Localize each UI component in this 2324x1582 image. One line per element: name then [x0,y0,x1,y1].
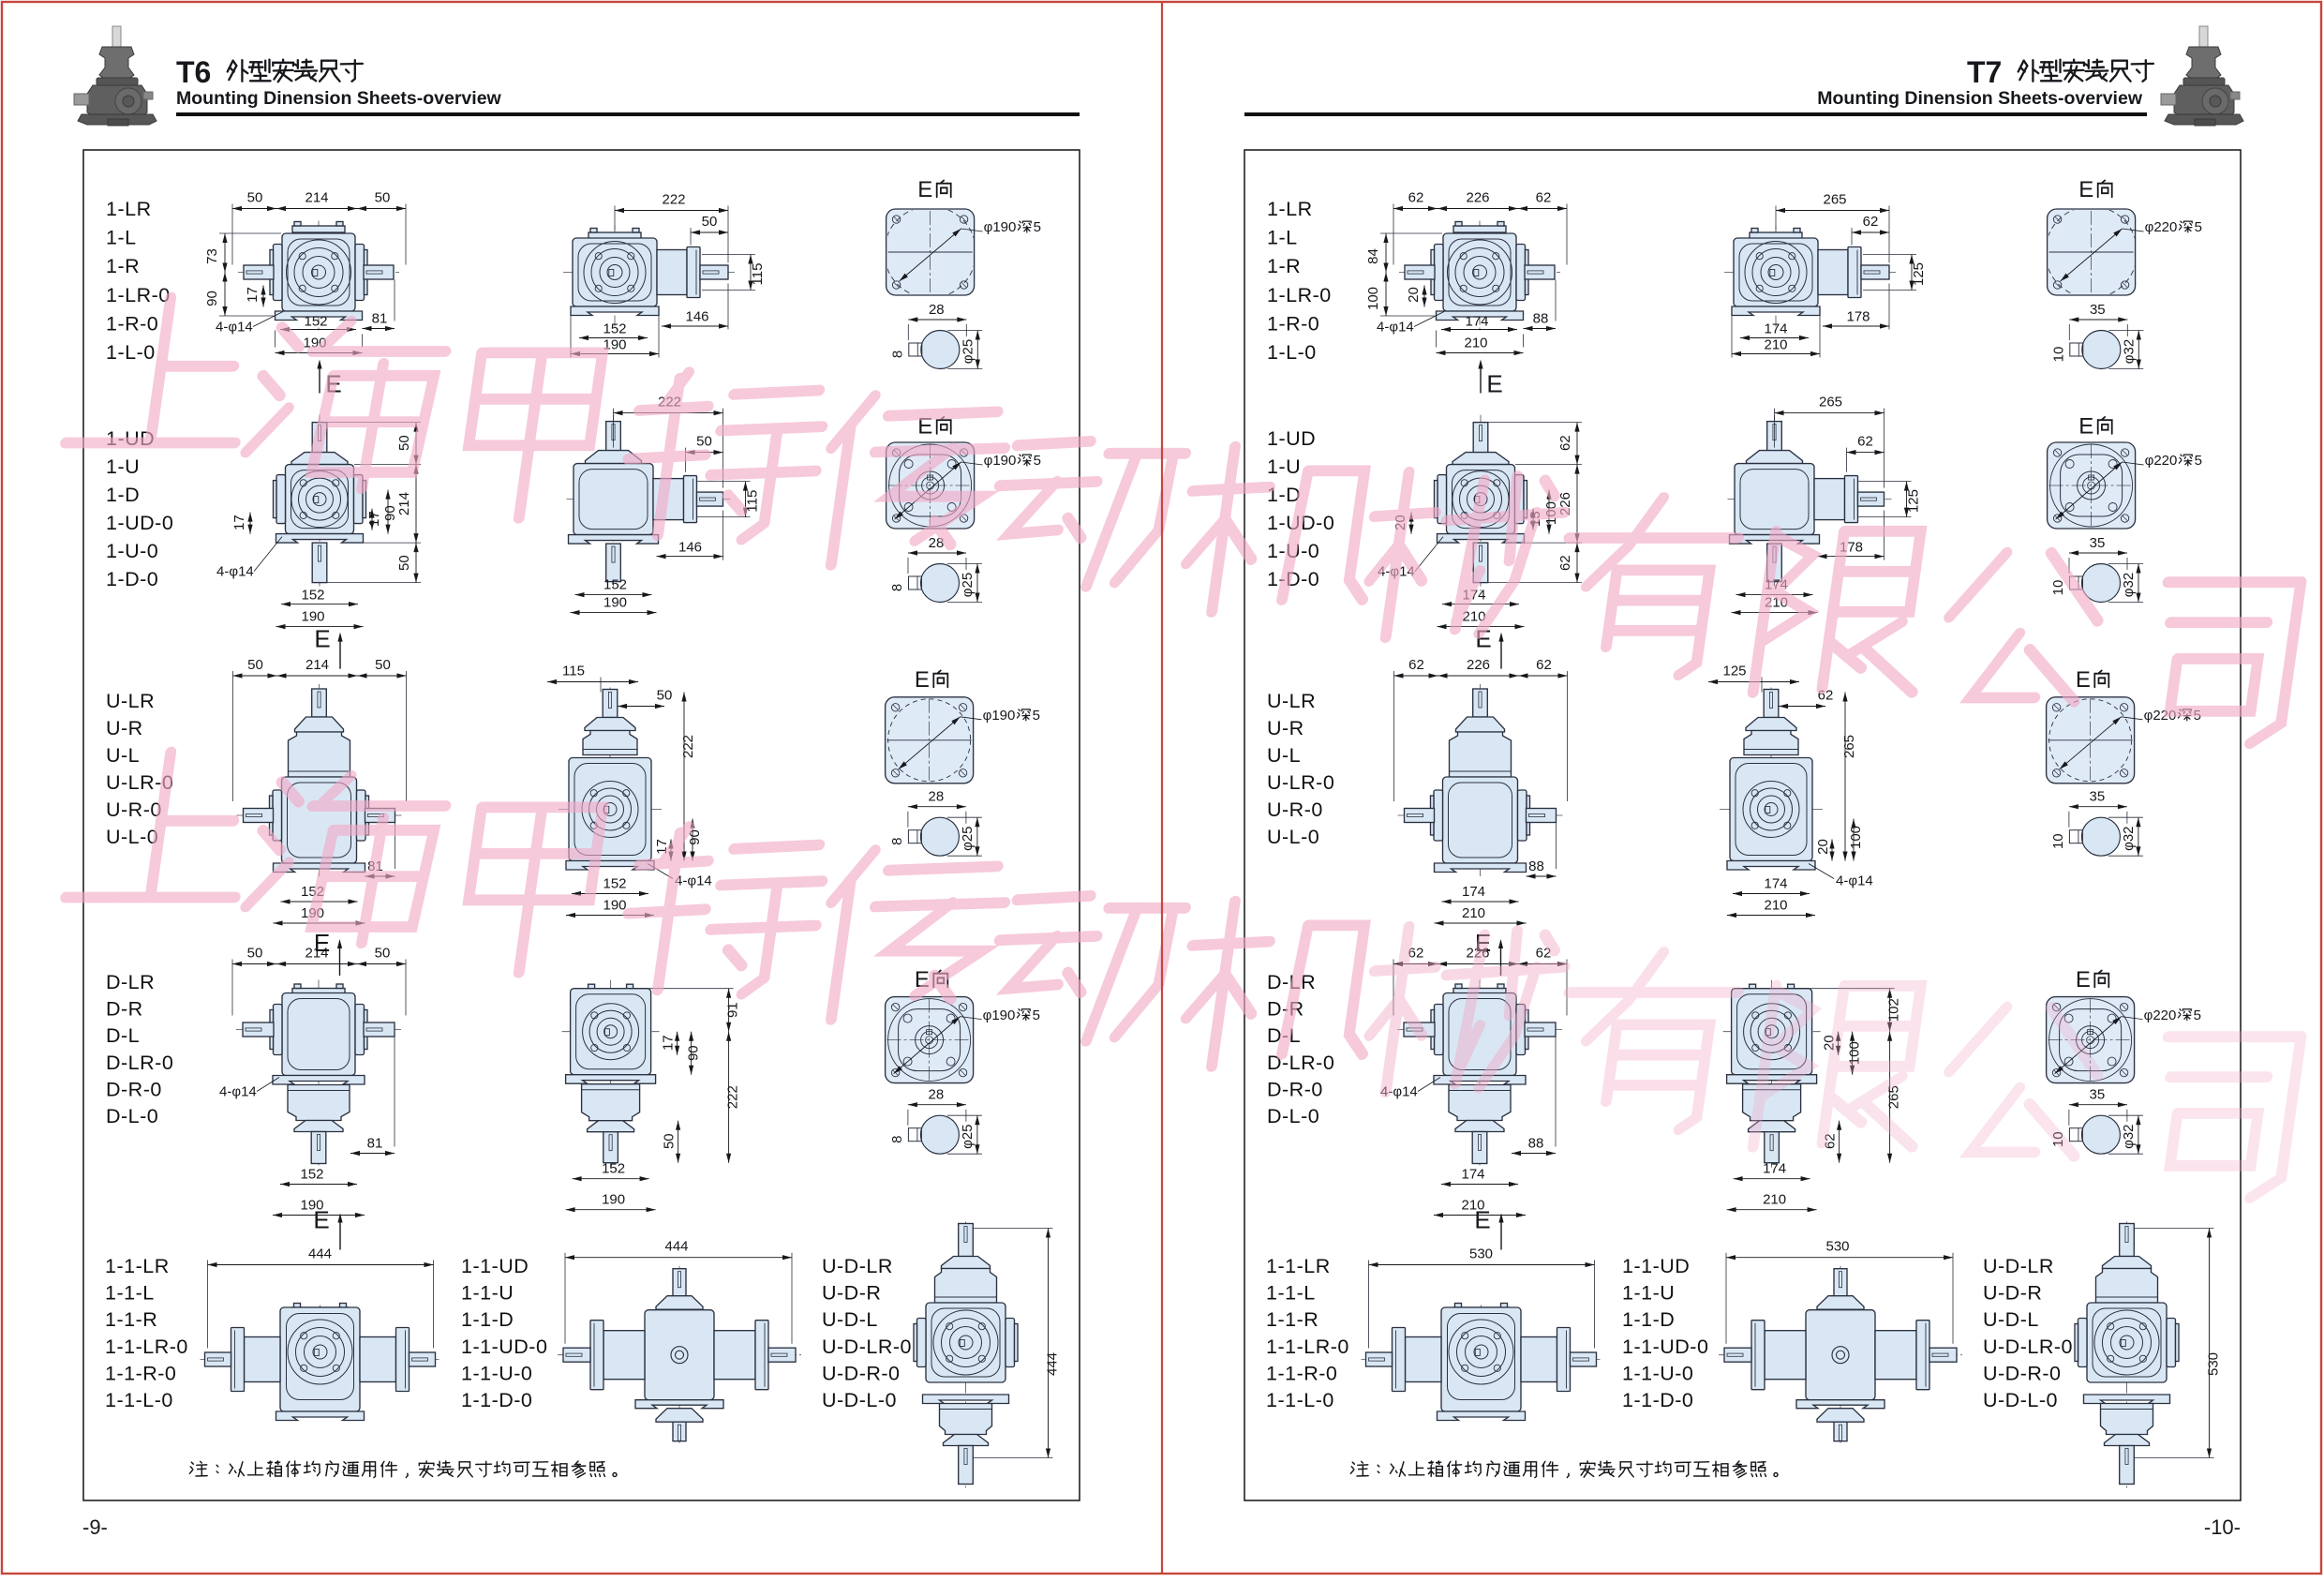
svg-text:E: E [2078,413,2093,439]
svg-text:222: 222 [680,735,696,758]
svg-text:152: 152 [300,1167,323,1183]
svg-text:1-1-R-0: 1-1-R-0 [105,1362,176,1384]
svg-text:125: 125 [1722,664,1746,679]
svg-text:5: 5 [1033,1007,1040,1023]
svg-text:U-D-L: U-D-L [822,1308,878,1331]
svg-text:4-φ14: 4-φ14 [219,1084,257,1100]
svg-text:17: 17 [661,1035,677,1051]
svg-text:E: E [2078,177,2093,202]
svg-text:8: 8 [889,838,905,845]
svg-text:E: E [314,625,330,653]
svg-text:146: 146 [678,540,702,556]
svg-text:50: 50 [657,688,673,704]
svg-text:1-LR: 1-LR [106,198,152,220]
svg-text:8: 8 [889,584,905,591]
svg-text:50: 50 [702,214,718,230]
svg-text:35: 35 [2090,535,2106,551]
svg-text:73: 73 [204,248,220,264]
svg-text:φ25: φ25 [960,339,976,364]
svg-text:10: 10 [2050,347,2066,363]
svg-text:D-L-0: D-L-0 [1267,1105,1319,1127]
svg-text:62: 62 [1557,555,1573,571]
svg-text:1-1-LR: 1-1-LR [1266,1255,1331,1277]
svg-text:210: 210 [1462,905,1485,921]
svg-text:D-R: D-R [106,998,143,1021]
svg-text:100: 100 [1365,287,1381,310]
svg-text:28: 28 [929,789,945,805]
svg-text:20: 20 [1815,839,1831,855]
svg-text:152: 152 [603,321,626,337]
svg-text:U-R: U-R [1267,717,1304,739]
svg-text:88: 88 [1533,311,1549,327]
svg-text:115: 115 [562,664,585,679]
svg-text:174: 174 [1462,884,1485,900]
svg-text:174: 174 [1461,1167,1484,1183]
svg-text:5: 5 [2194,1007,2201,1023]
svg-text:17: 17 [245,287,261,303]
svg-text:1-U: 1-U [1267,455,1301,478]
svg-text:U-L: U-L [1267,744,1301,767]
svg-text:530: 530 [1469,1246,1493,1262]
svg-text:5: 5 [1034,453,1041,469]
svg-text:4-φ14: 4-φ14 [216,564,254,580]
svg-text:444: 444 [1045,1352,1061,1376]
svg-text:φ190: φ190 [984,453,1017,469]
svg-text:50: 50 [375,190,391,206]
svg-text:214: 214 [396,492,412,515]
svg-text:50: 50 [396,555,412,571]
svg-text:5: 5 [1034,219,1041,235]
svg-text:84: 84 [1365,248,1381,264]
svg-text:152: 152 [301,588,324,604]
svg-text:φ25: φ25 [960,1124,976,1148]
svg-text:1-1-U-0: 1-1-U-0 [1622,1362,1693,1384]
svg-text:1-1-U: 1-1-U [1622,1282,1675,1305]
svg-text:62: 62 [1408,190,1424,206]
svg-text:U-L-0: U-L-0 [106,826,158,848]
svg-text:E: E [915,667,930,693]
svg-text:D-LR-0: D-LR-0 [106,1052,173,1074]
svg-text:U-D-LR: U-D-LR [1983,1255,2054,1277]
svg-text:1-1-L: 1-1-L [1266,1282,1316,1305]
svg-text:1-UD: 1-UD [1267,427,1316,450]
svg-text:222: 222 [662,192,685,208]
svg-text:φ190: φ190 [983,1007,1016,1023]
svg-text:10: 10 [2050,833,2066,849]
svg-text:265: 265 [1823,192,1846,208]
svg-text:T7: T7 [1967,55,2002,89]
svg-text:Mounting Dinension Sheets-over: Mounting Dinension Sheets-overview [1817,88,2143,109]
svg-text:1-1-UD-0: 1-1-UD-0 [1622,1336,1708,1358]
svg-text:1-1-LR-0: 1-1-LR-0 [105,1336,188,1358]
svg-text:1-1-L-0: 1-1-L-0 [1266,1389,1334,1411]
svg-text:E: E [917,177,932,202]
svg-text:1-1-D-0: 1-1-D-0 [1622,1389,1693,1411]
svg-text:U-D-R: U-D-R [1983,1282,2042,1305]
svg-text:50: 50 [247,657,263,673]
svg-text:190: 190 [603,898,626,914]
svg-text:φ32: φ32 [2121,339,2137,364]
svg-text:U-D-L-0: U-D-L-0 [1983,1389,2058,1411]
svg-text:8: 8 [889,1136,905,1143]
svg-text:90: 90 [204,291,220,306]
svg-text:1-R: 1-R [1267,255,1301,277]
svg-text:D-L-0: D-L-0 [106,1105,158,1127]
svg-text:50: 50 [375,946,391,962]
svg-text:1-1-U: 1-1-U [461,1282,514,1305]
svg-text:1-LR-0: 1-LR-0 [1267,284,1332,306]
svg-text:φ32: φ32 [2121,1124,2137,1148]
svg-text:1-L: 1-L [1267,227,1298,249]
svg-text:222: 222 [725,1085,741,1109]
svg-text:88: 88 [1528,1136,1544,1152]
svg-text:T6: T6 [176,55,211,89]
svg-text:214: 214 [305,946,328,962]
svg-text:90: 90 [382,505,398,521]
svg-text:152: 152 [602,1161,625,1177]
svg-text:1-L-0: 1-L-0 [1267,341,1317,364]
svg-text:35: 35 [2090,789,2106,805]
svg-text:444: 444 [308,1246,332,1262]
svg-text:125: 125 [1911,262,1927,286]
svg-text:4-φ14: 4-φ14 [216,320,253,336]
svg-text:35: 35 [2090,302,2106,318]
svg-text:U-D-LR-0: U-D-LR-0 [822,1336,912,1358]
svg-text:E: E [2076,667,2091,693]
svg-text:U-D-L-0: U-D-L-0 [822,1389,897,1411]
svg-text:81: 81 [367,1136,383,1152]
svg-text:174: 174 [1764,321,1787,337]
svg-text:D-R-0: D-R-0 [1267,1078,1323,1100]
svg-text:1-1-LR-0: 1-1-LR-0 [1266,1336,1349,1358]
svg-text:D-R-0: D-R-0 [106,1078,162,1100]
svg-text:5: 5 [2195,453,2202,469]
svg-text:1-1-L: 1-1-L [105,1282,155,1305]
svg-text:174: 174 [1465,314,1488,330]
svg-text:1-R-0: 1-R-0 [1267,312,1319,335]
svg-text:4-φ14: 4-φ14 [675,873,712,889]
svg-text:62: 62 [1863,214,1879,230]
svg-text:U-L-0: U-L-0 [1267,826,1319,848]
svg-text:U-D-LR-0: U-D-LR-0 [1983,1336,2073,1358]
svg-text:1-1-UD: 1-1-UD [461,1255,529,1277]
svg-text:210: 210 [1464,336,1487,351]
svg-text:28: 28 [929,302,945,318]
svg-text:17: 17 [366,511,382,527]
svg-text:4-φ14: 4-φ14 [1377,320,1414,336]
svg-text:210: 210 [1764,898,1787,914]
svg-text:1-D-0: 1-D-0 [106,568,158,590]
svg-text:1-1-D: 1-1-D [461,1308,514,1331]
svg-text:50: 50 [696,434,712,450]
svg-text:U-R: U-R [106,717,143,739]
svg-text:1-LR-0: 1-LR-0 [106,284,171,306]
svg-text:1-UD-0: 1-UD-0 [106,512,173,534]
svg-text:1-LR: 1-LR [1267,198,1313,220]
svg-text:E: E [313,1206,329,1234]
svg-text:E: E [2076,967,2091,992]
svg-text:50: 50 [375,657,391,673]
svg-text:E: E [1486,370,1502,398]
svg-text:1-U: 1-U [106,455,140,478]
svg-text:178: 178 [1846,309,1870,325]
svg-text:50: 50 [247,946,263,962]
svg-text:530: 530 [2206,1352,2222,1376]
svg-text:D-LR: D-LR [106,971,155,993]
svg-text:U-D-R: U-D-R [822,1282,881,1305]
svg-text:Mounting Dinension Sheets-over: Mounting Dinension Sheets-overview [176,88,502,109]
svg-text:φ32: φ32 [2121,826,2137,850]
svg-text:4-φ14: 4-φ14 [1836,873,1873,889]
svg-text:10: 10 [2050,580,2066,596]
svg-text:530: 530 [1825,1239,1849,1255]
svg-text:1-1-UD-0: 1-1-UD-0 [461,1336,547,1358]
svg-text:91: 91 [725,1002,741,1018]
svg-text:-9-: -9- [82,1515,108,1539]
svg-text:1-1-R-0: 1-1-R-0 [1266,1362,1337,1384]
svg-text:φ32: φ32 [2121,573,2137,597]
svg-text:U-L: U-L [106,744,140,767]
svg-text:152: 152 [603,876,626,892]
svg-text:1-R: 1-R [106,255,140,277]
svg-text:62: 62 [1536,190,1552,206]
svg-text:125: 125 [1906,489,1922,513]
svg-text:62: 62 [1857,434,1873,450]
svg-text:174: 174 [1763,1161,1786,1177]
svg-text:190: 190 [603,595,627,611]
svg-text:226: 226 [1467,657,1490,673]
svg-text:5: 5 [2195,219,2202,235]
svg-text:1-1-L-0: 1-1-L-0 [105,1389,173,1411]
svg-text:1-L: 1-L [106,227,137,249]
svg-text:φ220: φ220 [2144,1007,2177,1023]
svg-text:8: 8 [889,351,905,358]
svg-text:U-LR: U-LR [106,690,155,712]
svg-text:φ220: φ220 [2145,219,2178,235]
svg-text:28: 28 [929,1087,945,1103]
svg-text:1-L-0: 1-L-0 [106,341,156,364]
svg-text:152: 152 [603,577,627,593]
svg-text:U-D-R-0: U-D-R-0 [822,1362,901,1384]
svg-text:62: 62 [1557,435,1573,451]
svg-text:50: 50 [247,190,263,206]
svg-text:50: 50 [396,435,412,451]
svg-text:1-1-R: 1-1-R [105,1308,157,1331]
svg-text:210: 210 [1763,1192,1786,1208]
svg-text:1-1-LR: 1-1-LR [105,1255,170,1277]
svg-text:214: 214 [305,657,329,673]
svg-text:81: 81 [372,311,388,327]
svg-text:146: 146 [685,309,708,325]
svg-text:17: 17 [231,515,247,530]
svg-text:U-D-LR: U-D-LR [822,1255,893,1277]
svg-text:102: 102 [1886,998,1902,1022]
svg-text:U-LR-0: U-LR-0 [1267,771,1334,794]
svg-text:U-D-R-0: U-D-R-0 [1983,1362,2062,1384]
svg-text:1-U-0: 1-U-0 [106,540,158,562]
svg-text:115: 115 [750,263,766,286]
svg-text:1-D: 1-D [106,484,140,506]
svg-text:1-1-D: 1-1-D [1622,1308,1675,1331]
svg-text:-10-: -10- [2204,1515,2241,1539]
svg-text:φ190: φ190 [984,219,1017,235]
svg-text:1-R-0: 1-R-0 [106,312,158,335]
svg-text:U-R-0: U-R-0 [1267,798,1323,821]
svg-text:50: 50 [662,1133,678,1149]
svg-text:444: 444 [664,1239,688,1255]
svg-text:88: 88 [1528,858,1544,874]
svg-text:174: 174 [1764,876,1787,892]
svg-text:5: 5 [1033,708,1040,724]
svg-text:U-R-0: U-R-0 [106,798,162,821]
svg-text:1-1-U-0: 1-1-U-0 [461,1362,532,1384]
svg-text:1-1-R: 1-1-R [1266,1308,1318,1331]
svg-text:62: 62 [1536,657,1552,673]
svg-text:φ220: φ220 [2145,453,2178,469]
svg-text:20: 20 [1406,287,1422,303]
svg-text:E: E [1474,1206,1490,1234]
svg-text:1-1-UD: 1-1-UD [1622,1255,1690,1277]
svg-text:210: 210 [1764,337,1787,353]
svg-text:φ25: φ25 [960,573,976,597]
svg-text:D-L: D-L [106,1024,140,1047]
svg-text:214: 214 [305,190,328,206]
svg-text:62: 62 [1408,657,1424,673]
svg-text:φ25: φ25 [960,826,976,850]
svg-text:265: 265 [1841,735,1857,758]
svg-text:90: 90 [686,1045,702,1061]
svg-text:265: 265 [1819,395,1842,410]
svg-text:1-1-D-0: 1-1-D-0 [461,1389,532,1411]
svg-text:152: 152 [304,314,327,330]
svg-text:190: 190 [602,1192,625,1208]
svg-text:35: 35 [2090,1087,2106,1103]
svg-text:226: 226 [1466,190,1489,206]
svg-text:100: 100 [1848,826,1864,849]
svg-text:U-D-L: U-D-L [1983,1308,2039,1331]
svg-text:φ190: φ190 [983,708,1016,724]
svg-text:U-LR: U-LR [1267,690,1316,712]
svg-text:190: 190 [301,609,324,625]
